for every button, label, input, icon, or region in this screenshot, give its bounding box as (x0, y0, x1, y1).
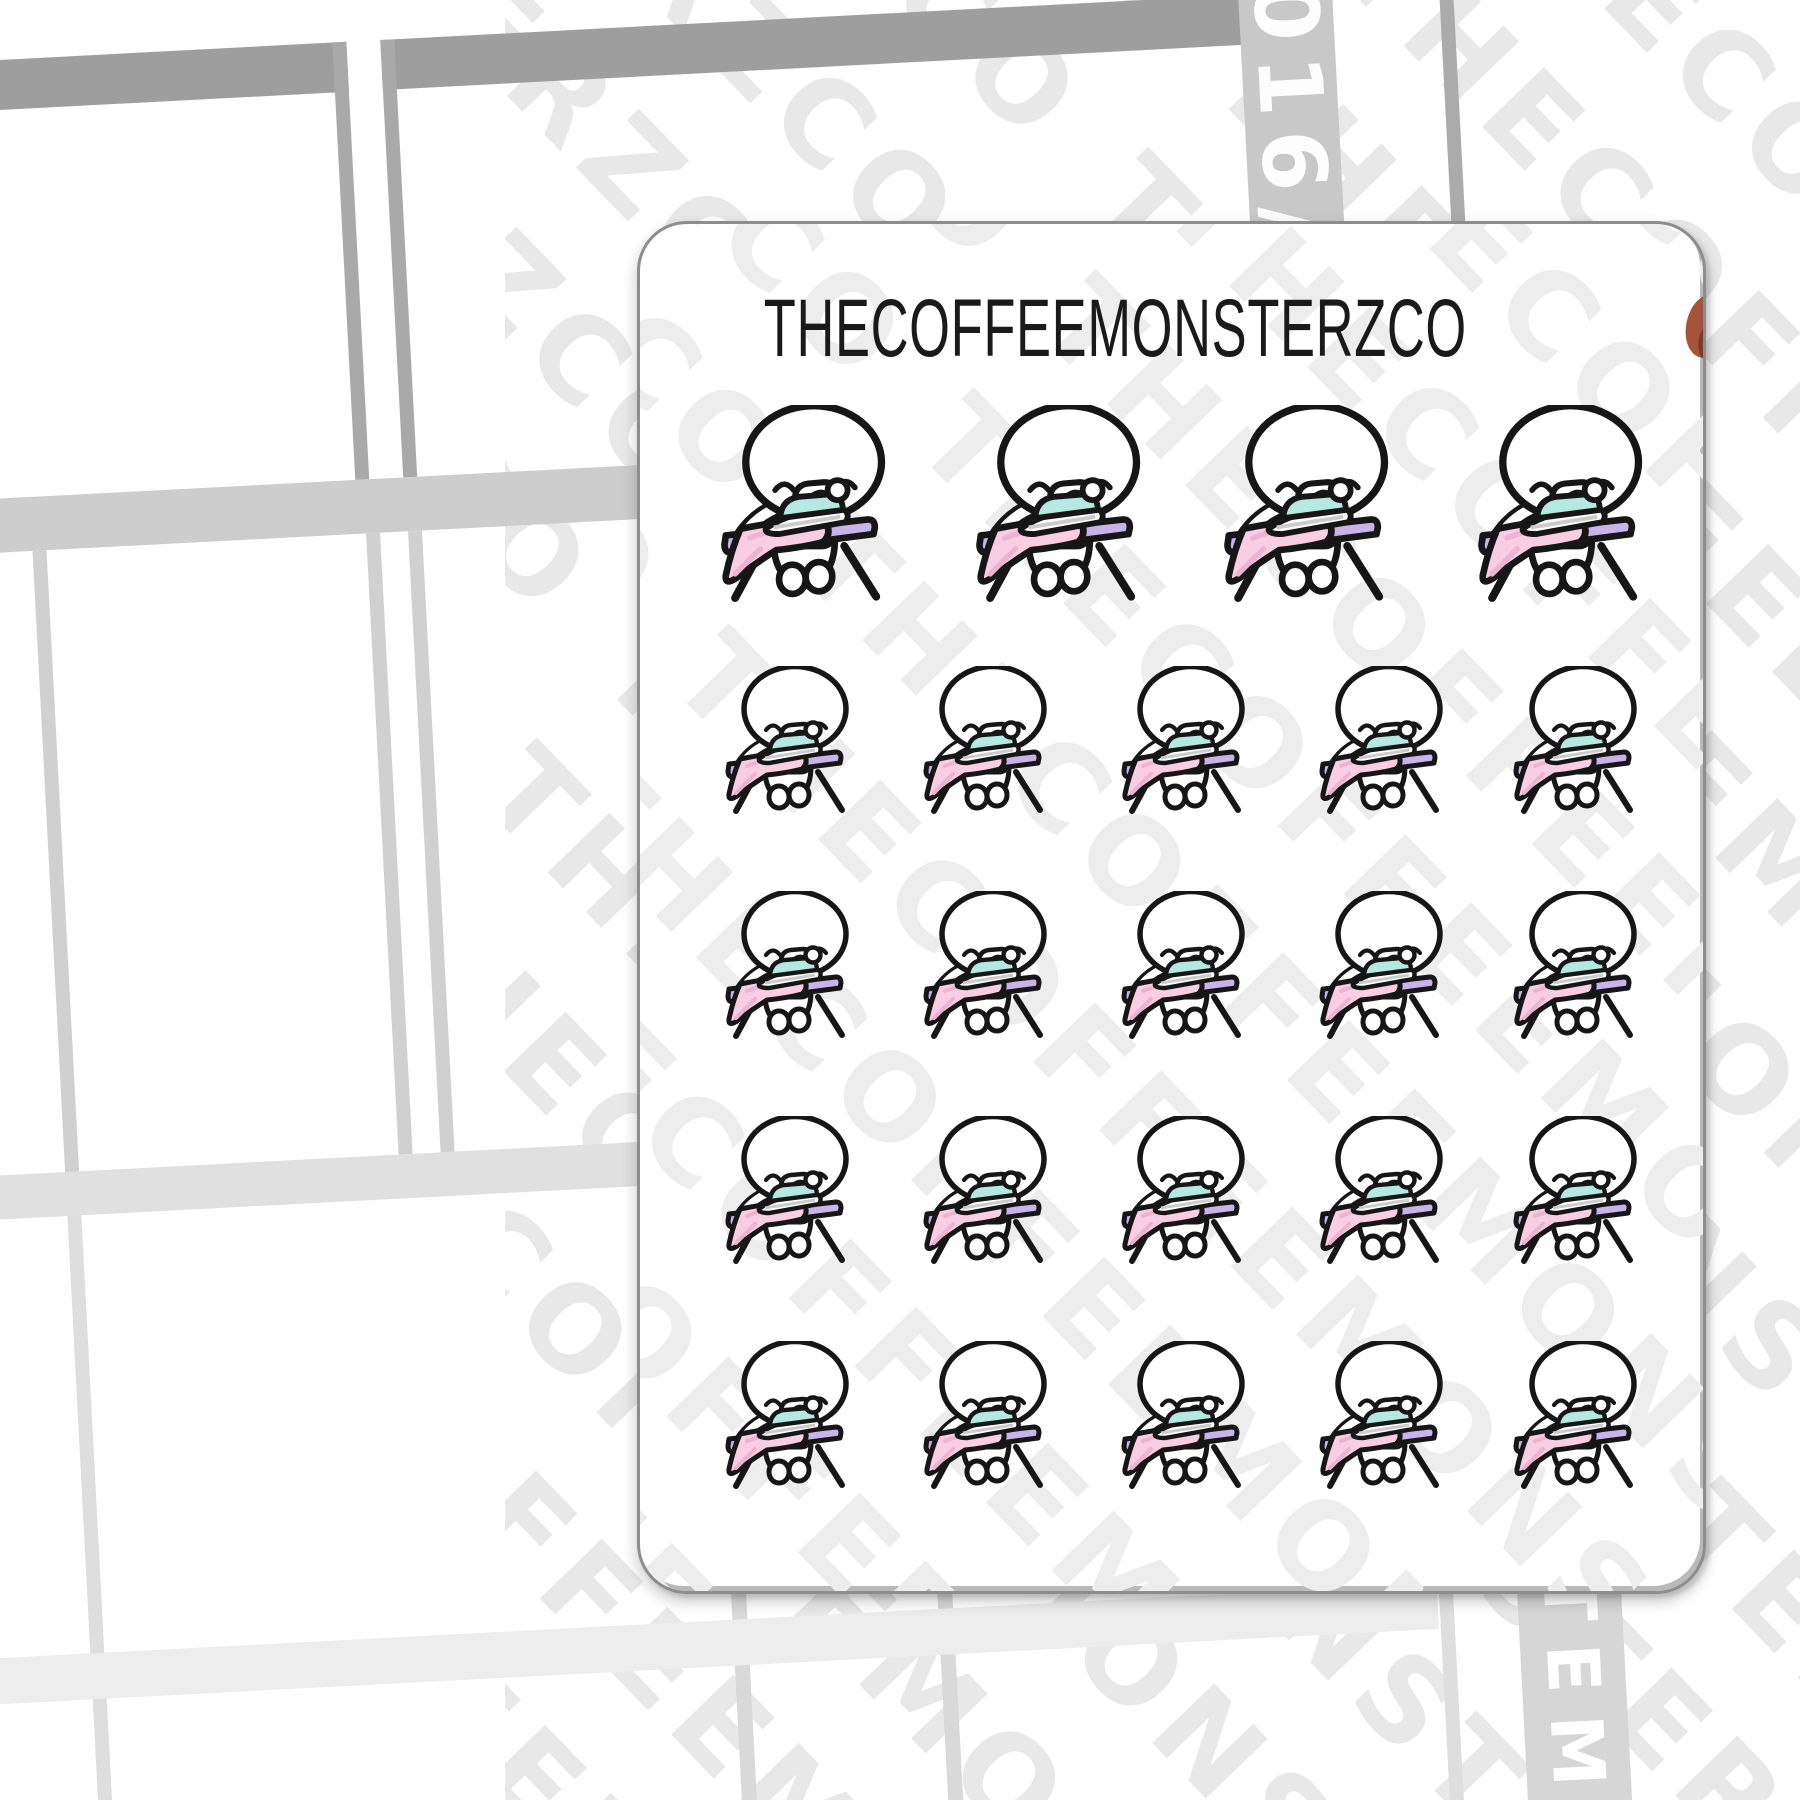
sticker-emoti-ironing-on-ironing-board (1516, 667, 1634, 812)
sticker-emoti-ironing-on-ironing-board (724, 406, 881, 598)
planner-header-bar (380, 0, 1285, 90)
sticker-emoti-ironing-on-ironing-board (1322, 1342, 1440, 1487)
planner-box-border (408, 531, 455, 1153)
planner-separator (0, 1583, 1439, 1708)
sticker-emoti-ironing-on-ironing-board (926, 1342, 1044, 1487)
sticker-emoti-ironing-on-ironing-board (1124, 1117, 1242, 1262)
sticker-emoti-ironing-on-ironing-board (926, 892, 1044, 1037)
sticker-emoti-ironing-on-ironing-board (728, 1342, 846, 1487)
sticker-emoti-ironing-on-ironing-board (1516, 892, 1634, 1037)
sticker-sheet: THECOFFEEMONSTERZCO THECOFFEEMONSTERZCO … (637, 221, 1706, 1594)
sticker-emoti-ironing-on-ironing-board (728, 892, 846, 1037)
product-photo: THECOFFEEMONSTERZCO THECOFFEEMONSTERZCO … (0, 0, 1800, 1800)
planner-box-border (380, 39, 417, 477)
sticker-emoti-ironing-on-ironing-board (1322, 1117, 1440, 1262)
sticker-emoti-ironing-on-ironing-board (1322, 892, 1440, 1037)
sticker-emoti-ironing-on-ironing-board (1227, 406, 1384, 598)
sticker-emoti-ironing-on-ironing-board (728, 1117, 846, 1262)
planner-box (0, 42, 369, 506)
planner-box-border (33, 550, 80, 1172)
planner-box-border (366, 533, 413, 1155)
sticker-grid (640, 224, 1703, 1591)
sticker-emoti-ironing-on-ironing-board (1124, 667, 1242, 812)
sticker-emoti-ironing-on-ironing-board (1322, 667, 1440, 812)
sticker-emoti-ironing-on-ironing-board (1481, 406, 1638, 598)
sticker-emoti-ironing-on-ironing-board (926, 1117, 1044, 1262)
sticker-emoti-ironing-on-ironing-board (1516, 1117, 1634, 1262)
planner-box-border (67, 1215, 120, 1800)
sticker-emoti-ironing-on-ironing-board (1124, 1342, 1242, 1487)
sticker-emoti-ironing-on-ironing-board (979, 406, 1136, 598)
sticker-emoti-ironing-on-ironing-board (1516, 1342, 1634, 1487)
sticker-emoti-ironing-on-ironing-board (728, 667, 846, 812)
sticker-emoti-ironing-on-ironing-board (1124, 892, 1242, 1037)
sticker-emoti-ironing-on-ironing-board (926, 667, 1044, 812)
